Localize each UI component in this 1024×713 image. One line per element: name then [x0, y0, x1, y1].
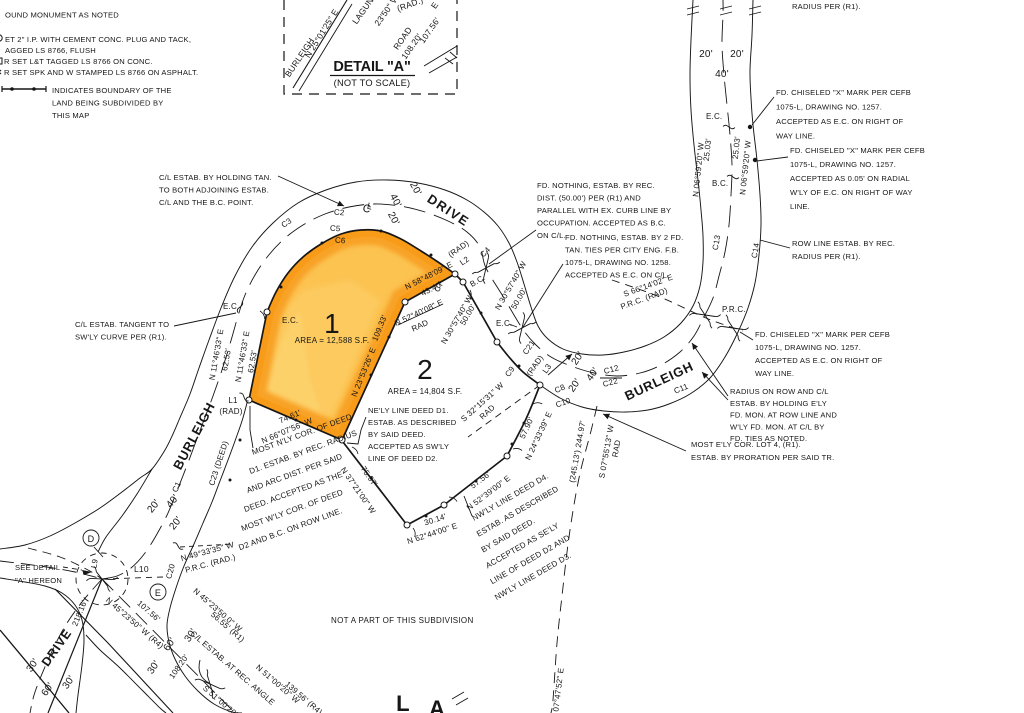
- svg-text:W'LY OF E.C. ON RIGHT OF WAY: W'LY OF E.C. ON RIGHT OF WAY: [790, 188, 913, 197]
- svg-text:TAN. TIES PER CITY ENG. F.B.: TAN. TIES PER CITY ENG. F.B.: [565, 246, 679, 255]
- svg-text:FD. CHISELED "X" MARK PER CEFB: FD. CHISELED "X" MARK PER CEFB: [776, 88, 911, 97]
- svg-text:SEE DETAIL: SEE DETAIL: [15, 563, 60, 572]
- svg-text:AGGED LS 8766, FLUSH: AGGED LS 8766, FLUSH: [5, 46, 96, 55]
- svg-text:1: 1: [324, 308, 340, 339]
- svg-text:40': 40': [715, 69, 729, 80]
- svg-text:LINE.: LINE.: [790, 202, 810, 211]
- svg-text:FD. CHISELED "X" MARK PER CEFB: FD. CHISELED "X" MARK PER CEFB: [755, 330, 890, 339]
- svg-text:PARALLEL WITH EX. CURB LINE BY: PARALLEL WITH EX. CURB LINE BY: [537, 206, 671, 215]
- svg-text:"A" HEREON: "A" HEREON: [15, 576, 62, 585]
- svg-text:DETAIL "A": DETAIL "A": [333, 59, 410, 75]
- svg-text:(RAD): (RAD): [219, 407, 242, 416]
- svg-text:ON C/L.: ON C/L.: [537, 231, 566, 240]
- svg-text:OCCUPATION. ACCEPTED AS B.C.: OCCUPATION. ACCEPTED AS B.C.: [537, 219, 666, 228]
- svg-text:1075-L, DRAWING NO. 1257.: 1075-L, DRAWING NO. 1257.: [790, 160, 896, 169]
- svg-text:P.R.C.: P.R.C.: [722, 305, 746, 314]
- svg-text:RADIUS PER (R1).: RADIUS PER (R1).: [792, 252, 861, 261]
- svg-text:1075-L, DRAWING NO. 1257.: 1075-L, DRAWING NO. 1257.: [755, 343, 861, 352]
- svg-text:LINE OF DEED D2.: LINE OF DEED D2.: [368, 454, 438, 463]
- svg-text:THIS MAP: THIS MAP: [52, 111, 89, 120]
- svg-text:A: A: [429, 696, 445, 713]
- svg-text:E.C.: E.C.: [282, 316, 298, 325]
- svg-text:WAY LINE.: WAY LINE.: [755, 369, 794, 378]
- svg-text:AREA = 14,804 S.F.: AREA = 14,804 S.F.: [388, 387, 463, 396]
- svg-text:ACCEPTED AS SW'LY: ACCEPTED AS SW'LY: [368, 442, 449, 451]
- svg-text:LAND BEING SUBDIVIDED BY: LAND BEING SUBDIVIDED BY: [52, 99, 164, 108]
- svg-text:BY SAID DEED.: BY SAID DEED.: [368, 430, 426, 439]
- svg-text:FD. NOTHING, ESTAB. BY 2 FD.: FD. NOTHING, ESTAB. BY 2 FD.: [565, 233, 683, 242]
- svg-text:ROW LINE ESTAB. BY REC.: ROW LINE ESTAB. BY REC.: [792, 239, 895, 248]
- svg-text:C5: C5: [330, 224, 342, 234]
- svg-text:R SET SPK AND W STAMPED LS 876: R SET SPK AND W STAMPED LS 8766 ON ASPHA…: [4, 68, 198, 77]
- svg-text:OUND MONUMENT AS NOTED: OUND MONUMENT AS NOTED: [5, 11, 119, 20]
- svg-text:ACCEPTED AS E.C. ON RIGHT OF: ACCEPTED AS E.C. ON RIGHT OF: [776, 117, 904, 126]
- svg-text:INDICATES BOUNDARY OF THE: INDICATES BOUNDARY OF THE: [52, 86, 172, 95]
- svg-text:AREA = 12,588 S.F.: AREA = 12,588 S.F.: [295, 336, 370, 345]
- svg-text:DIST. (50.00') PER (R1) AND: DIST. (50.00') PER (R1) AND: [537, 194, 641, 203]
- svg-text:ACCEPTED AS 0.05' ON RADIAL: ACCEPTED AS 0.05' ON RADIAL: [790, 174, 910, 183]
- svg-text:TO BOTH ADJOINING ESTAB.: TO BOTH ADJOINING ESTAB.: [159, 186, 269, 195]
- svg-text:WAY LINE.: WAY LINE.: [776, 132, 815, 141]
- svg-text:20': 20': [699, 49, 713, 60]
- svg-text:B.C.: B.C.: [712, 179, 728, 188]
- svg-text:2: 2: [417, 354, 433, 385]
- svg-text:C/L ESTAB. BY HOLDING TAN.: C/L ESTAB. BY HOLDING TAN.: [159, 173, 272, 182]
- svg-text:L10: L10: [134, 564, 149, 574]
- svg-text:(NOT TO SCALE): (NOT TO SCALE): [334, 78, 411, 88]
- svg-text:ESTAB. BY PRORATION PER SAID: ESTAB. BY PRORATION PER SAID TR.: [691, 453, 834, 462]
- svg-text:ACCEPTED AS E.C. ON RIGHT OF: ACCEPTED AS E.C. ON RIGHT OF: [755, 356, 883, 365]
- svg-text:20': 20': [730, 49, 744, 60]
- svg-text:R SET L&T TAGGED LS 8766 ON CO: R SET L&T TAGGED LS 8766 ON CONC.: [4, 57, 153, 66]
- svg-text:RADIUS PER (R1).: RADIUS PER (R1).: [792, 2, 861, 11]
- svg-text:MOST E'LY COR. LOT 4, (R1).: MOST E'LY COR. LOT 4, (R1).: [691, 440, 801, 449]
- svg-text:E.C.: E.C.: [706, 112, 722, 121]
- svg-text:FD. NOTHING, ESTAB. BY REC.: FD. NOTHING, ESTAB. BY REC.: [537, 181, 655, 190]
- svg-text:FD. CHISELED "X" MARK PER CEFB: FD. CHISELED "X" MARK PER CEFB: [790, 146, 925, 155]
- svg-text:D: D: [88, 534, 95, 544]
- svg-text:1075-L, DRAWING NO. 1257.: 1075-L, DRAWING NO. 1257.: [776, 103, 882, 112]
- svg-text:C6: C6: [335, 236, 347, 246]
- svg-text:E.C.: E.C.: [496, 319, 512, 328]
- svg-text:ESTAB. BY HOLDING E'LY: ESTAB. BY HOLDING E'LY: [730, 399, 827, 408]
- svg-text:L: L: [396, 691, 410, 713]
- svg-text:E.C.: E.C.: [223, 302, 239, 311]
- svg-text:L1: L1: [228, 396, 238, 405]
- svg-text:C/L ESTAB. TANGENT TO: C/L ESTAB. TANGENT TO: [75, 320, 169, 329]
- svg-text:ESTAB. AS DESCRIBED: ESTAB. AS DESCRIBED: [368, 418, 457, 427]
- svg-text:SW'LY CURVE PER (R1).: SW'LY CURVE PER (R1).: [75, 333, 167, 342]
- svg-text:ET 2" I.P. WITH CEMENT CONC. P: ET 2" I.P. WITH CEMENT CONC. PLUG AND TA…: [5, 35, 191, 44]
- svg-text:E: E: [155, 588, 161, 598]
- svg-text:FD. MON. AT ROW LINE AND: FD. MON. AT ROW LINE AND: [730, 411, 837, 420]
- svg-text:1075-L, DRAWING NO. 1258.: 1075-L, DRAWING NO. 1258.: [565, 258, 671, 267]
- svg-text:NOT A PART OF THIS SUBDIVISION: NOT A PART OF THIS SUBDIVISION: [331, 616, 474, 625]
- svg-text:NE'LY LINE DEED D1.: NE'LY LINE DEED D1.: [368, 406, 449, 415]
- svg-text:RADIUS ON ROW AND C/L: RADIUS ON ROW AND C/L: [730, 387, 829, 396]
- svg-text:W'LY FD. MON. AT C/L BY: W'LY FD. MON. AT C/L BY: [730, 422, 825, 431]
- svg-text:C2: C2: [334, 208, 346, 218]
- svg-text:C/L AND THE B.C. POINT.: C/L AND THE B.C. POINT.: [159, 198, 253, 207]
